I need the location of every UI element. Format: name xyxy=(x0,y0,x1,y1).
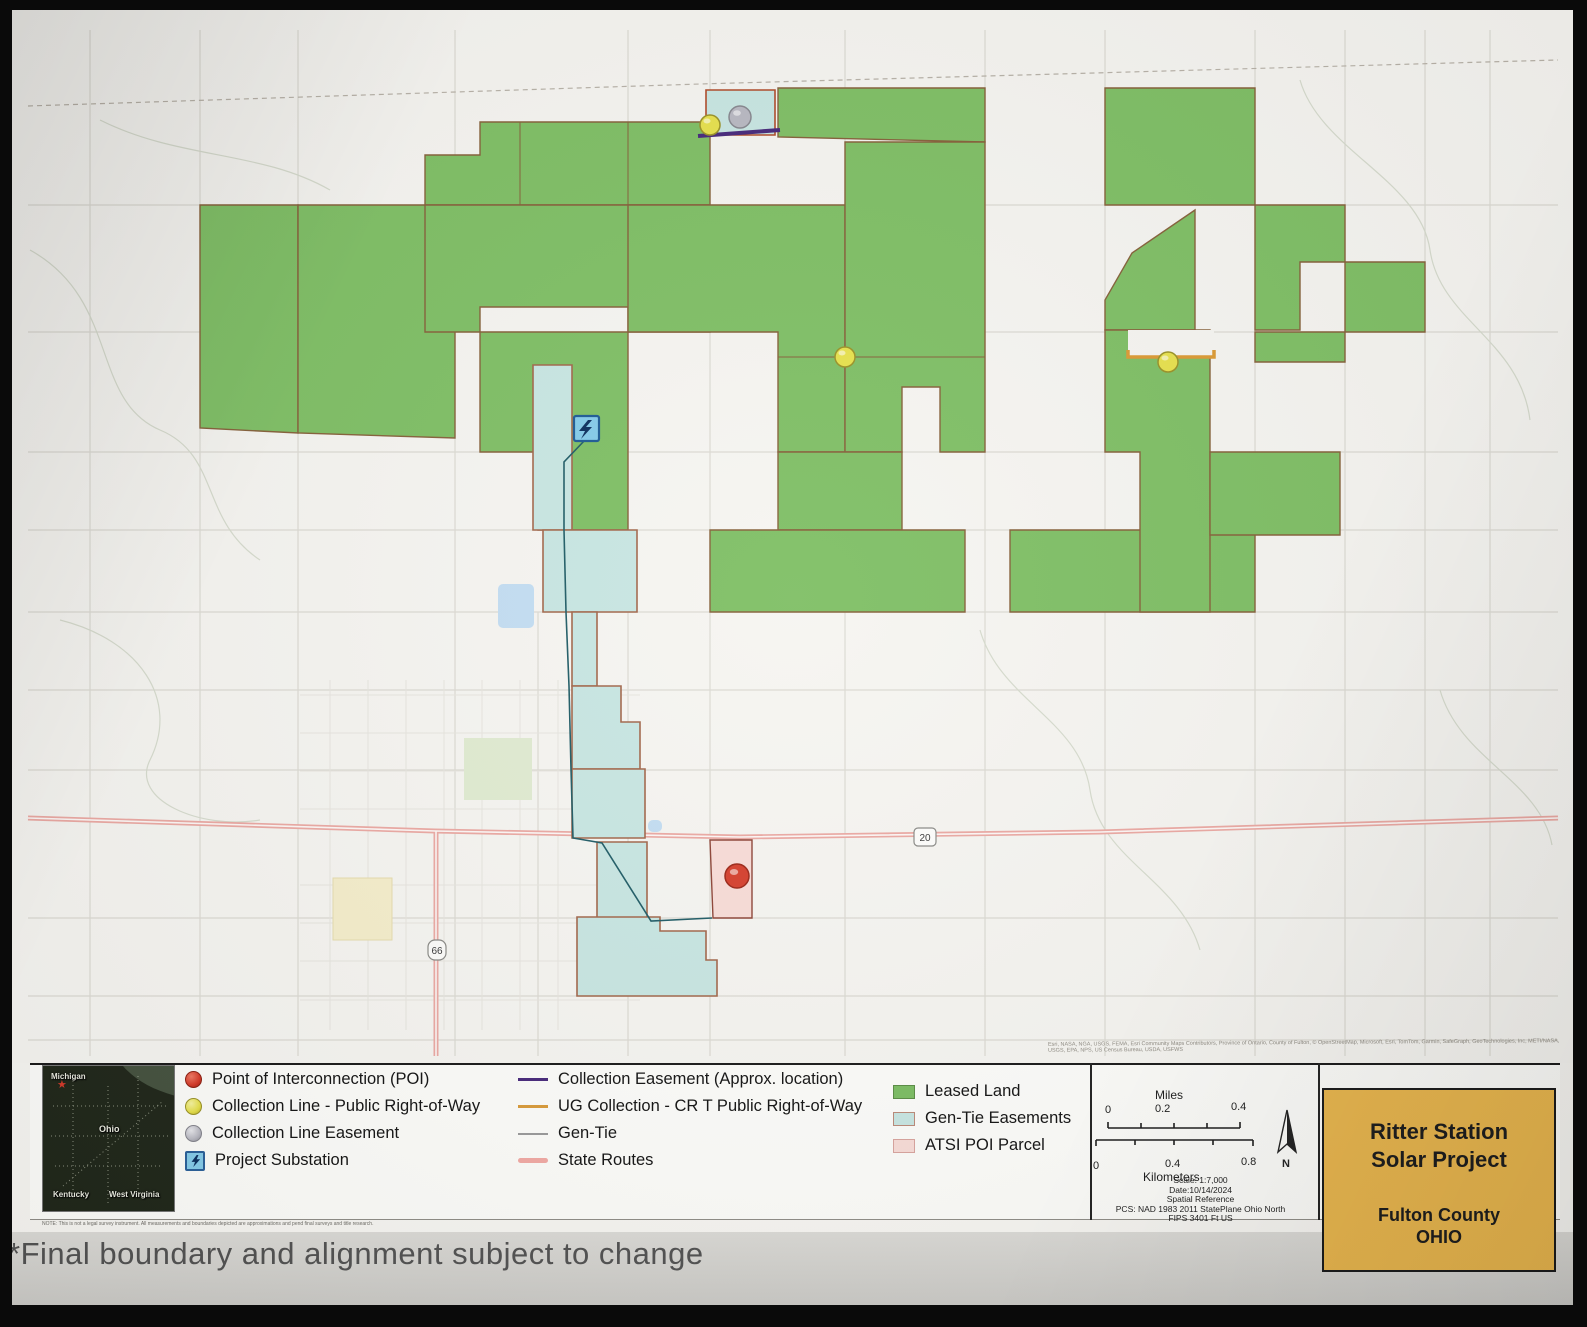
gen-tie-easement-parcel xyxy=(572,612,597,686)
gen-tie-easement-parcel xyxy=(572,769,645,838)
green-area-icon xyxy=(893,1085,915,1099)
legend-item-project-substation: Project Substation xyxy=(185,1151,480,1170)
inset-label-west-virginia: West Virginia xyxy=(109,1190,159,1199)
gray-line-icon xyxy=(518,1133,548,1135)
gen-tie-easement-parcel xyxy=(597,842,647,918)
inset-label-kentucky: Kentucky xyxy=(53,1190,89,1199)
lake-erie-shape xyxy=(123,1066,175,1096)
legend-item-gen-tie: Gen-Tie xyxy=(518,1124,862,1143)
park-area xyxy=(464,738,532,800)
photo-border xyxy=(0,0,1587,10)
north-label: N xyxy=(1282,1158,1290,1170)
legend-item-state-routes: State Routes xyxy=(518,1151,862,1170)
gray-dot-icon xyxy=(185,1125,202,1142)
panel-divider xyxy=(1318,1063,1320,1220)
leased-land-parcel xyxy=(1010,530,1255,612)
project-location: Fulton County OHIO xyxy=(1324,1204,1554,1248)
pond xyxy=(648,820,662,832)
pond xyxy=(498,584,534,628)
gen-tie-easement-parcel xyxy=(543,530,637,612)
gen-tie-easement-parcel xyxy=(533,365,572,530)
miles-label: Miles xyxy=(1155,1088,1183,1102)
collection-line-row-pin xyxy=(1158,352,1178,372)
photo-border xyxy=(1573,0,1587,1327)
photo-border xyxy=(0,0,12,1327)
map-scale-details: Scale: 1:7,000 Date:10/14/2024 Spatial R… xyxy=(1083,1176,1318,1224)
fips-text: FIPS 3401 Ft US xyxy=(1083,1214,1318,1224)
pin-highlight xyxy=(704,119,711,124)
orange-line-icon xyxy=(518,1105,548,1108)
legend-label: Gen-Tie Easements xyxy=(925,1109,1071,1128)
photo-border xyxy=(0,1305,1587,1327)
legend-item-gen-tie-easements: Gen-Tie Easements xyxy=(893,1109,1071,1128)
project-title-line1: Ritter Station xyxy=(1324,1118,1554,1146)
legend-column-lines: Collection Easement (Approx. location) U… xyxy=(518,1070,862,1178)
state-locator-inset-map: Michigan ★ Ohio Kentucky West Virginia xyxy=(42,1065,175,1212)
inset-label-ohio: Ohio xyxy=(99,1124,120,1134)
poi-dot-icon xyxy=(185,1071,202,1088)
legend-item-poi: Point of Interconnection (POI) xyxy=(185,1070,480,1089)
legend-item-collection-line-easement: Collection Line Easement xyxy=(185,1124,480,1143)
leased-land-parcel xyxy=(778,88,985,142)
leased-land-parcel xyxy=(778,452,902,530)
purple-line-icon xyxy=(518,1078,548,1081)
legend-item-ug-collection: UG Collection - CR T Public Right-of-Way xyxy=(518,1097,862,1116)
route-shield-number: 66 xyxy=(431,946,443,957)
map-canvas: 2066 xyxy=(0,0,1587,1063)
pin-highlight xyxy=(1162,356,1169,361)
collection-easement-pin xyxy=(729,106,751,128)
pin-highlight xyxy=(733,110,741,116)
collection-line-row-pin xyxy=(835,347,855,367)
lightning-bolt-icon xyxy=(189,1154,201,1168)
north-arrow-graphic xyxy=(1272,1106,1302,1156)
legend-label: State Routes xyxy=(558,1151,653,1170)
legend-label: Point of Interconnection (POI) xyxy=(212,1070,429,1089)
scale-tick: 0.2 xyxy=(1155,1103,1170,1115)
legend-column-points: Point of Interconnection (POI) Collectio… xyxy=(185,1070,480,1178)
scale-tick: 0.4 xyxy=(1231,1101,1246,1113)
legend-item-collection-easement: Collection Easement (Approx. location) xyxy=(518,1070,862,1089)
leased-land-parcel xyxy=(710,530,965,612)
legend-label: Gen-Tie xyxy=(558,1124,617,1143)
legend-item-collection-line-row: Collection Line - Public Right-of-Way xyxy=(185,1097,480,1116)
pink-line-icon xyxy=(518,1158,548,1163)
scale-tick: 0 xyxy=(1093,1160,1099,1172)
legend-label: ATSI POI Parcel xyxy=(925,1136,1045,1155)
legend-label: Collection Line - Public Right-of-Way xyxy=(212,1097,480,1116)
scale-tick: 0.4 xyxy=(1165,1158,1180,1170)
pin-highlight xyxy=(839,351,846,356)
teal-area-icon xyxy=(893,1112,915,1126)
bottom-caption: *Final boundary and alignment subject to… xyxy=(8,1236,704,1272)
yellow-dot-icon xyxy=(185,1098,202,1115)
scale-tick: 0.8 xyxy=(1241,1156,1256,1168)
state-label: OHIO xyxy=(1324,1226,1554,1248)
collection-line-row-pin xyxy=(700,115,720,135)
project-location-star-icon: ★ xyxy=(57,1080,67,1091)
legend-label: Project Substation xyxy=(215,1151,349,1170)
legend-item-atsi-poi-parcel: ATSI POI Parcel xyxy=(893,1136,1071,1155)
project-title: Ritter Station Solar Project xyxy=(1324,1118,1554,1174)
project-title-line2: Solar Project xyxy=(1324,1146,1554,1174)
legend-label: Collection Easement (Approx. location) xyxy=(558,1070,843,1089)
legend-label: UG Collection - CR T Public Right-of-Way xyxy=(558,1097,862,1116)
legend-label: Collection Line Easement xyxy=(212,1124,399,1143)
leased-land-parcel xyxy=(1255,332,1345,362)
disclaimer-note: NOTE: This is not a legal survey instrum… xyxy=(42,1221,682,1227)
leased-land-parcel xyxy=(200,205,298,433)
legend-column-areas: Leased Land Gen-Tie Easements ATSI POI P… xyxy=(893,1082,1071,1163)
north-arrow: N xyxy=(1272,1106,1302,1161)
legend-item-leased-land: Leased Land xyxy=(893,1082,1071,1101)
county-label: Fulton County xyxy=(1324,1204,1554,1226)
route-shield-number: 20 xyxy=(919,833,931,844)
legend-label: Leased Land xyxy=(925,1082,1020,1101)
leased-land-parcel xyxy=(1210,452,1340,535)
pin-highlight xyxy=(730,869,738,875)
leased-land-parcel xyxy=(1105,88,1255,205)
scale-tick: 0 xyxy=(1105,1104,1111,1116)
substation-icon xyxy=(185,1151,205,1171)
inset-county-grid xyxy=(51,1076,171,1206)
leased-land-parcel xyxy=(1345,262,1425,332)
pink-area-icon xyxy=(893,1139,915,1153)
cemetery-area xyxy=(333,878,392,940)
poi-marker xyxy=(725,864,749,888)
map-title-box: Ritter Station Solar Project Fulton Coun… xyxy=(1322,1088,1556,1272)
